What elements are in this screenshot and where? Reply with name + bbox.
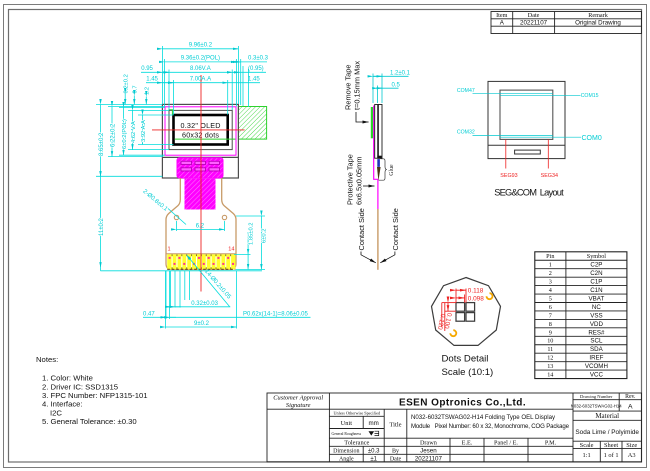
svg-text:6±0.2(POL): 6±0.2(POL) (122, 119, 128, 149)
svg-text:1: 1 (549, 262, 552, 269)
svg-text:Item: Item (496, 12, 508, 19)
svg-text:Scale: Scale (580, 442, 594, 449)
svg-text:8: 8 (549, 321, 552, 328)
svg-text:Contact Side: Contact Side (357, 208, 366, 250)
svg-text:Notes:: Notes: (36, 355, 58, 364)
svg-text:Module Pixel Number: 60 x 32: Module Pixel Number: 60 x 32, Monochrome… (411, 423, 570, 430)
svg-text:Remark: Remark (588, 12, 608, 19)
svg-text:N032-6032TSWAG02-H14 Folding T: N032-6032TSWAG02-H14 Folding Type OEL Di… (411, 414, 556, 421)
svg-text:7: 7 (549, 312, 552, 319)
svg-text:COM47: COM47 (457, 88, 475, 94)
svg-text:Contact Side: Contact Side (391, 208, 400, 250)
svg-text:General Roughness: General Roughness (331, 432, 361, 436)
svg-text:E.E.: E.E. (462, 440, 473, 447)
svg-text:VCC: VCC (590, 372, 604, 379)
svg-text:8.06V.A: 8.06V.A (190, 66, 211, 72)
svg-text:RES#: RES# (588, 329, 605, 336)
svg-text:VSS: VSS (590, 312, 602, 319)
svg-text:NC: NC (592, 304, 601, 311)
svg-text:Customer Approval: Customer Approval (273, 395, 323, 402)
svg-text:P0.62x(14-1)=8.06±0.05: P0.62x(14-1)=8.06±0.05 (243, 311, 309, 317)
svg-text:7.00A.A: 7.00A.A (190, 77, 211, 83)
svg-text:0.5: 0.5 (392, 82, 401, 88)
svg-text:C2P: C2P (590, 262, 602, 269)
svg-text:±1: ±1 (370, 456, 377, 462)
svg-text:0.098: 0.098 (468, 295, 484, 302)
svg-text:Symbol: Symbol (587, 253, 607, 260)
svg-text:11: 11 (547, 346, 553, 353)
svg-text:SCL: SCL (590, 338, 603, 345)
svg-text:13: 13 (547, 363, 553, 370)
svg-text:6x6.5x0.05mm: 6x6.5x0.05mm (355, 157, 364, 205)
svg-text:VCOMH: VCOMH (585, 363, 608, 370)
svg-text:2. Driver IC: SSD1315: 2. Driver IC: SSD1315 (42, 382, 118, 391)
svg-text:P.M.: P.M. (545, 440, 557, 447)
svg-text:Dimension: Dimension (333, 449, 359, 455)
svg-text:1:1: 1:1 (583, 452, 591, 459)
svg-text:Soda Lime / Polyimide: Soda Lime / Polyimide (575, 429, 639, 436)
svg-text:4: 4 (549, 287, 552, 294)
svg-text:9.36±0.2(POL): 9.36±0.2(POL) (181, 56, 220, 62)
svg-text:0.32" OLED: 0.32" OLED (181, 121, 221, 130)
svg-text:Jesen: Jesen (420, 448, 437, 455)
svg-text:1.2: 1.2 (144, 87, 150, 95)
svg-text:Pin: Pin (546, 253, 554, 260)
svg-text:12: 12 (547, 355, 553, 362)
svg-text:Angle: Angle (339, 456, 354, 462)
svg-text:3: 3 (549, 279, 552, 286)
svg-text:t=0.15mm Max: t=0.15mm Max (353, 61, 362, 110)
svg-text:IREF: IREF (589, 355, 603, 362)
svg-text:Rev.: Rev. (625, 394, 636, 400)
svg-text:N032-6032TSWAG02-H14: N032-6032TSWAG02-H14 (571, 403, 623, 408)
svg-text:A3: A3 (628, 452, 636, 459)
svg-text:1.2±0.1: 1.2±0.1 (390, 71, 411, 77)
svg-text:I2C: I2C (50, 408, 62, 417)
svg-text:A: A (628, 404, 633, 411)
svg-text:9: 9 (549, 329, 552, 336)
svg-text:By: By (392, 449, 399, 455)
svg-text:0.118: 0.118 (468, 288, 484, 295)
svg-text:1.45: 1.45 (248, 77, 260, 83)
svg-text:3. FPC Number: NFP1315-101: 3. FPC Number: NFP1315-101 (42, 391, 148, 400)
svg-text:Original Drawing: Original Drawing (575, 20, 621, 27)
svg-text:(0.95): (0.95) (248, 66, 264, 72)
svg-text:4. Interface:: 4. Interface: (42, 400, 83, 409)
svg-text:10: 10 (547, 338, 553, 345)
svg-text:14: 14 (547, 372, 553, 379)
svg-text:C2N: C2N (590, 270, 602, 277)
svg-text:6.22±0.2: 6.22±0.2 (110, 123, 116, 147)
svg-text:Unless Otherwise Specified: Unless Otherwise Specified (334, 410, 381, 415)
svg-text:COM0: COM0 (582, 135, 602, 142)
svg-text:SDA: SDA (590, 346, 604, 353)
svg-text:COM15: COM15 (581, 93, 599, 99)
svg-text:SEG&COM Layout: SEG&COM Layout (494, 187, 564, 197)
svg-text:20221107: 20221107 (415, 455, 443, 462)
svg-text:±0.3: ±0.3 (368, 449, 380, 455)
svg-text:Unit: Unit (341, 420, 353, 427)
svg-text:C1N: C1N (590, 287, 602, 294)
svg-text:Title: Title (389, 421, 401, 428)
svg-text:5. General Tolerance: ±0.30: 5. General Tolerance: ±0.30 (42, 417, 137, 426)
svg-text:1.45: 1.45 (146, 77, 158, 83)
svg-text:14: 14 (228, 247, 234, 253)
svg-text:Date: Date (390, 456, 402, 462)
svg-text:0.95: 0.95 (141, 66, 153, 72)
svg-text:Size: Size (626, 442, 637, 449)
svg-text:3.92 A.A: 3.92 A.A (141, 120, 147, 142)
svg-text:mm: mm (369, 420, 379, 427)
svg-text:6±0.2: 6±0.2 (262, 229, 268, 243)
svg-text:Glue: Glue (389, 164, 395, 176)
svg-text:0.3±0.3: 0.3±0.3 (248, 56, 269, 62)
svg-text:6.2: 6.2 (196, 224, 205, 230)
svg-text:9±0.2: 9±0.2 (194, 321, 210, 327)
svg-text:Remove Tape: Remove Tape (344, 65, 353, 110)
svg-text:Date: Date (528, 12, 540, 19)
svg-text:0.47: 0.47 (143, 311, 155, 317)
svg-text:VBAT: VBAT (589, 295, 605, 302)
svg-text:VDD: VDD (590, 321, 604, 328)
svg-text:Material: Material (595, 412, 619, 420)
svg-text:Sheet: Sheet (604, 442, 618, 449)
svg-text:0.7: 0.7 (132, 85, 138, 93)
svg-text:Drawing Number: Drawing Number (580, 394, 613, 399)
svg-text:11±0.2: 11±0.2 (99, 217, 105, 236)
svg-text:SEG34: SEG34 (541, 173, 558, 179)
svg-text:20221107: 20221107 (520, 20, 548, 27)
svg-text:1: 1 (168, 247, 171, 253)
svg-text:Panel / E.: Panel / E. (494, 440, 518, 447)
svg-text:9.96±0.2: 9.96±0.2 (189, 43, 213, 49)
svg-text:COM32: COM32 (457, 130, 475, 136)
svg-text:Protective Tape: Protective Tape (346, 154, 355, 205)
svg-text:0.2±0.2: 0.2±0.2 (123, 74, 129, 93)
svg-text:8.65±0.2: 8.65±0.2 (99, 132, 105, 156)
svg-text:1. Color: White: 1. Color: White (42, 374, 93, 383)
svg-text:Signature: Signature (286, 402, 311, 409)
svg-text:4.62 V.A: 4.62 V.A (131, 121, 137, 143)
svg-text:Scale (10:1): Scale (10:1) (442, 367, 494, 378)
svg-text:Drawn: Drawn (420, 440, 437, 447)
svg-text:ESEN Optronics Co.,Ltd.: ESEN Optronics Co.,Ltd. (399, 397, 526, 408)
svg-text:C1P: C1P (590, 279, 602, 286)
svg-text:Dots Detail: Dots Detail (442, 354, 489, 365)
svg-text:Tolerance: Tolerance (344, 440, 369, 447)
svg-text:6: 6 (549, 304, 552, 311)
svg-text:1.85±0.2: 1.85±0.2 (248, 222, 254, 245)
svg-text:SEG93: SEG93 (500, 173, 517, 179)
svg-text:0.32±0.03: 0.32±0.03 (191, 301, 218, 307)
svg-text:2: 2 (549, 270, 552, 277)
svg-text:5: 5 (549, 295, 552, 302)
svg-text:1 of 1: 1 of 1 (604, 452, 619, 459)
